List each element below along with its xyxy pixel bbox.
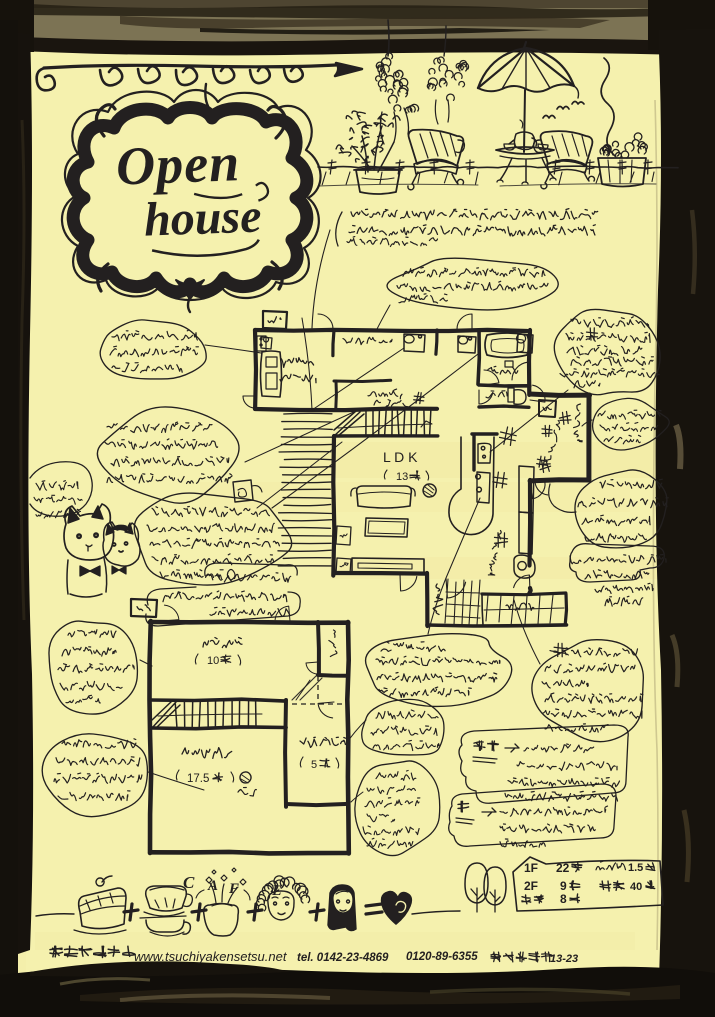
svg-text:0120-89-6355: 0120-89-6355 xyxy=(406,951,478,963)
svg-text:1F: 1F xyxy=(524,861,538,875)
svg-text:13-23: 13-23 xyxy=(550,953,578,965)
svg-text:1.5: 1.5 xyxy=(628,862,643,874)
svg-text:www.tsuchiyakensetsu.net: www.tsuchiyakensetsu.net xyxy=(134,949,288,964)
svg-text:9: 9 xyxy=(560,879,567,893)
svg-text:L D K: L D K xyxy=(383,449,418,465)
svg-text:house: house xyxy=(143,190,262,247)
svg-text:22: 22 xyxy=(556,861,570,875)
svg-text:C: C xyxy=(183,873,195,892)
svg-text:40: 40 xyxy=(630,881,642,893)
svg-text:2F: 2F xyxy=(524,879,538,893)
svg-text:tel. 0142-23-4869: tel. 0142-23-4869 xyxy=(297,952,389,964)
svg-text:Open: Open xyxy=(115,132,241,196)
svg-text:13: 13 xyxy=(396,471,408,483)
svg-text:A: A xyxy=(207,878,218,894)
svg-text:F: F xyxy=(228,881,239,897)
svg-text:10: 10 xyxy=(207,655,219,667)
svg-text:8: 8 xyxy=(560,892,567,906)
svg-text:5: 5 xyxy=(311,759,317,771)
svg-text:17.5: 17.5 xyxy=(187,773,209,785)
